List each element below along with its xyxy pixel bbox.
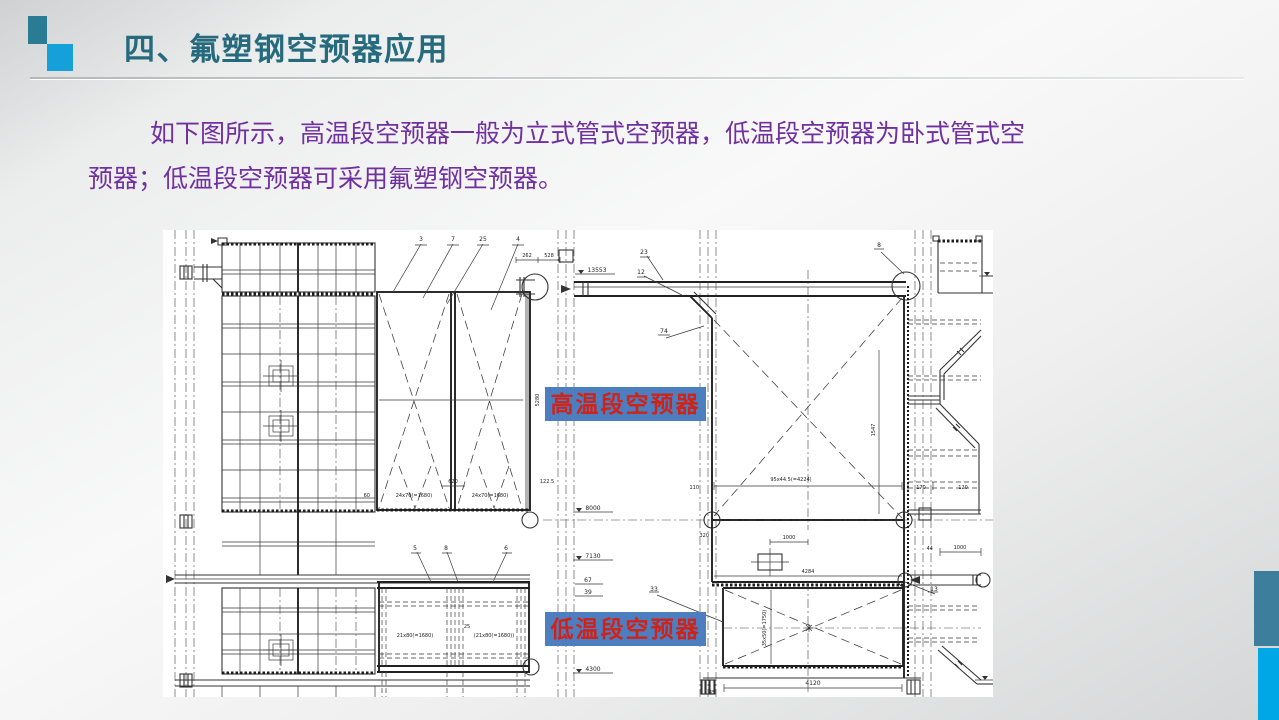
low-temp-duct-left: 5 8 6 21x80(=1680) 25 (21x80(=1680)) — [377, 545, 539, 697]
elevation-label: 8000 — [585, 505, 600, 512]
dim-label: 110 — [689, 485, 699, 491]
elevation-label: 7130 — [585, 553, 600, 560]
body-paragraph: 如下图所示，高温段空预器一般为立式管式空预器，低温段空预器为卧式管式空 预器；低… — [88, 112, 1138, 202]
slide-background: 四、氟塑钢空预器应用 如下图所示，高温段空预器一般为立式管式空预器，低温段空预器… — [0, 0, 1279, 720]
part-number: 5 — [413, 545, 417, 552]
dim-label: 620 — [448, 479, 458, 485]
dim-label: 21x80(=1680) — [397, 633, 434, 639]
elevation-label: 39 — [584, 589, 592, 596]
part-number: 3 — [419, 236, 423, 243]
part-number: 25 — [479, 236, 487, 243]
horizontal-preheater-box: 74 8 1547 110 95x44.5(=4224) 170 120 — [543, 242, 993, 530]
dim-label: 44 — [927, 546, 933, 552]
dim-label: 60 — [364, 493, 370, 499]
dim-label: 25 — [464, 624, 470, 630]
dim-label: 262 — [522, 253, 532, 259]
left-boiler-grid — [166, 243, 530, 697]
dim-label: 4120 — [805, 680, 820, 687]
accent-square-light — [47, 44, 73, 71]
access-door — [263, 634, 299, 666]
callout-high-temp: 高温段空预器 — [545, 387, 706, 421]
part-number: 33 — [650, 586, 658, 593]
part-number: 8 — [877, 242, 881, 249]
dim-label: 1000 — [783, 535, 796, 541]
access-door — [263, 410, 299, 442]
part-number: 6 — [504, 545, 508, 552]
body-line-2: 预器；低温段空预器可采用氟塑钢空预器。 — [88, 157, 1138, 202]
mid-connection-zone: 1000 320 4284 — [699, 520, 912, 587]
elevation-label: 67 — [584, 577, 592, 584]
dim-label: 1547 — [871, 424, 877, 437]
body-line-1: 如下图所示，高温段空预器一般为立式管式空预器，低温段空预器为卧式管式空 — [88, 112, 1138, 157]
dim-label: 1000 — [954, 545, 967, 551]
dim-label: 4284 — [802, 569, 815, 575]
sidebar-accent-blue — [1258, 648, 1279, 720]
dim-label: 320 — [699, 533, 709, 539]
part-number: 8 — [444, 545, 448, 552]
sidebar-accent-teal — [1254, 571, 1279, 646]
callout-low-temp: 低温段空预器 — [545, 612, 706, 646]
access-door — [263, 360, 299, 392]
page-title: 四、氟塑钢空预器应用 — [124, 24, 449, 69]
dim-label: 95x44.5(=4224) — [770, 477, 811, 483]
dim-label: 528 — [544, 253, 554, 259]
part-number: 7 — [451, 236, 455, 243]
part-number: 12 — [637, 269, 645, 276]
elevation-label: 4300 — [585, 666, 600, 673]
part-number: 13 — [930, 586, 938, 593]
accent-square-dark — [28, 16, 47, 44]
right-outlet-ducts: 44 1000 — [904, 230, 993, 697]
left-centerlines — [175, 230, 227, 697]
part-number: 74 — [660, 328, 668, 335]
elevation-label: 13553 — [587, 267, 606, 274]
part-number: 4 — [516, 236, 520, 243]
dim-label: 35x50(=1750) — [762, 610, 768, 647]
dim-label: 122.5 — [540, 479, 554, 485]
part-number: 23 — [640, 249, 648, 256]
dim-label: 24x70(=1680) — [472, 493, 509, 499]
dim-label: (21x80(=1680)) — [474, 633, 514, 639]
title-separator — [30, 77, 1244, 80]
dim-label: 24x70(=1680) — [396, 493, 433, 499]
dim-label: 45 — [709, 690, 715, 696]
dim-label: 5280 — [535, 394, 541, 407]
top-air-duct: 262 528 23 12 — [516, 249, 906, 300]
